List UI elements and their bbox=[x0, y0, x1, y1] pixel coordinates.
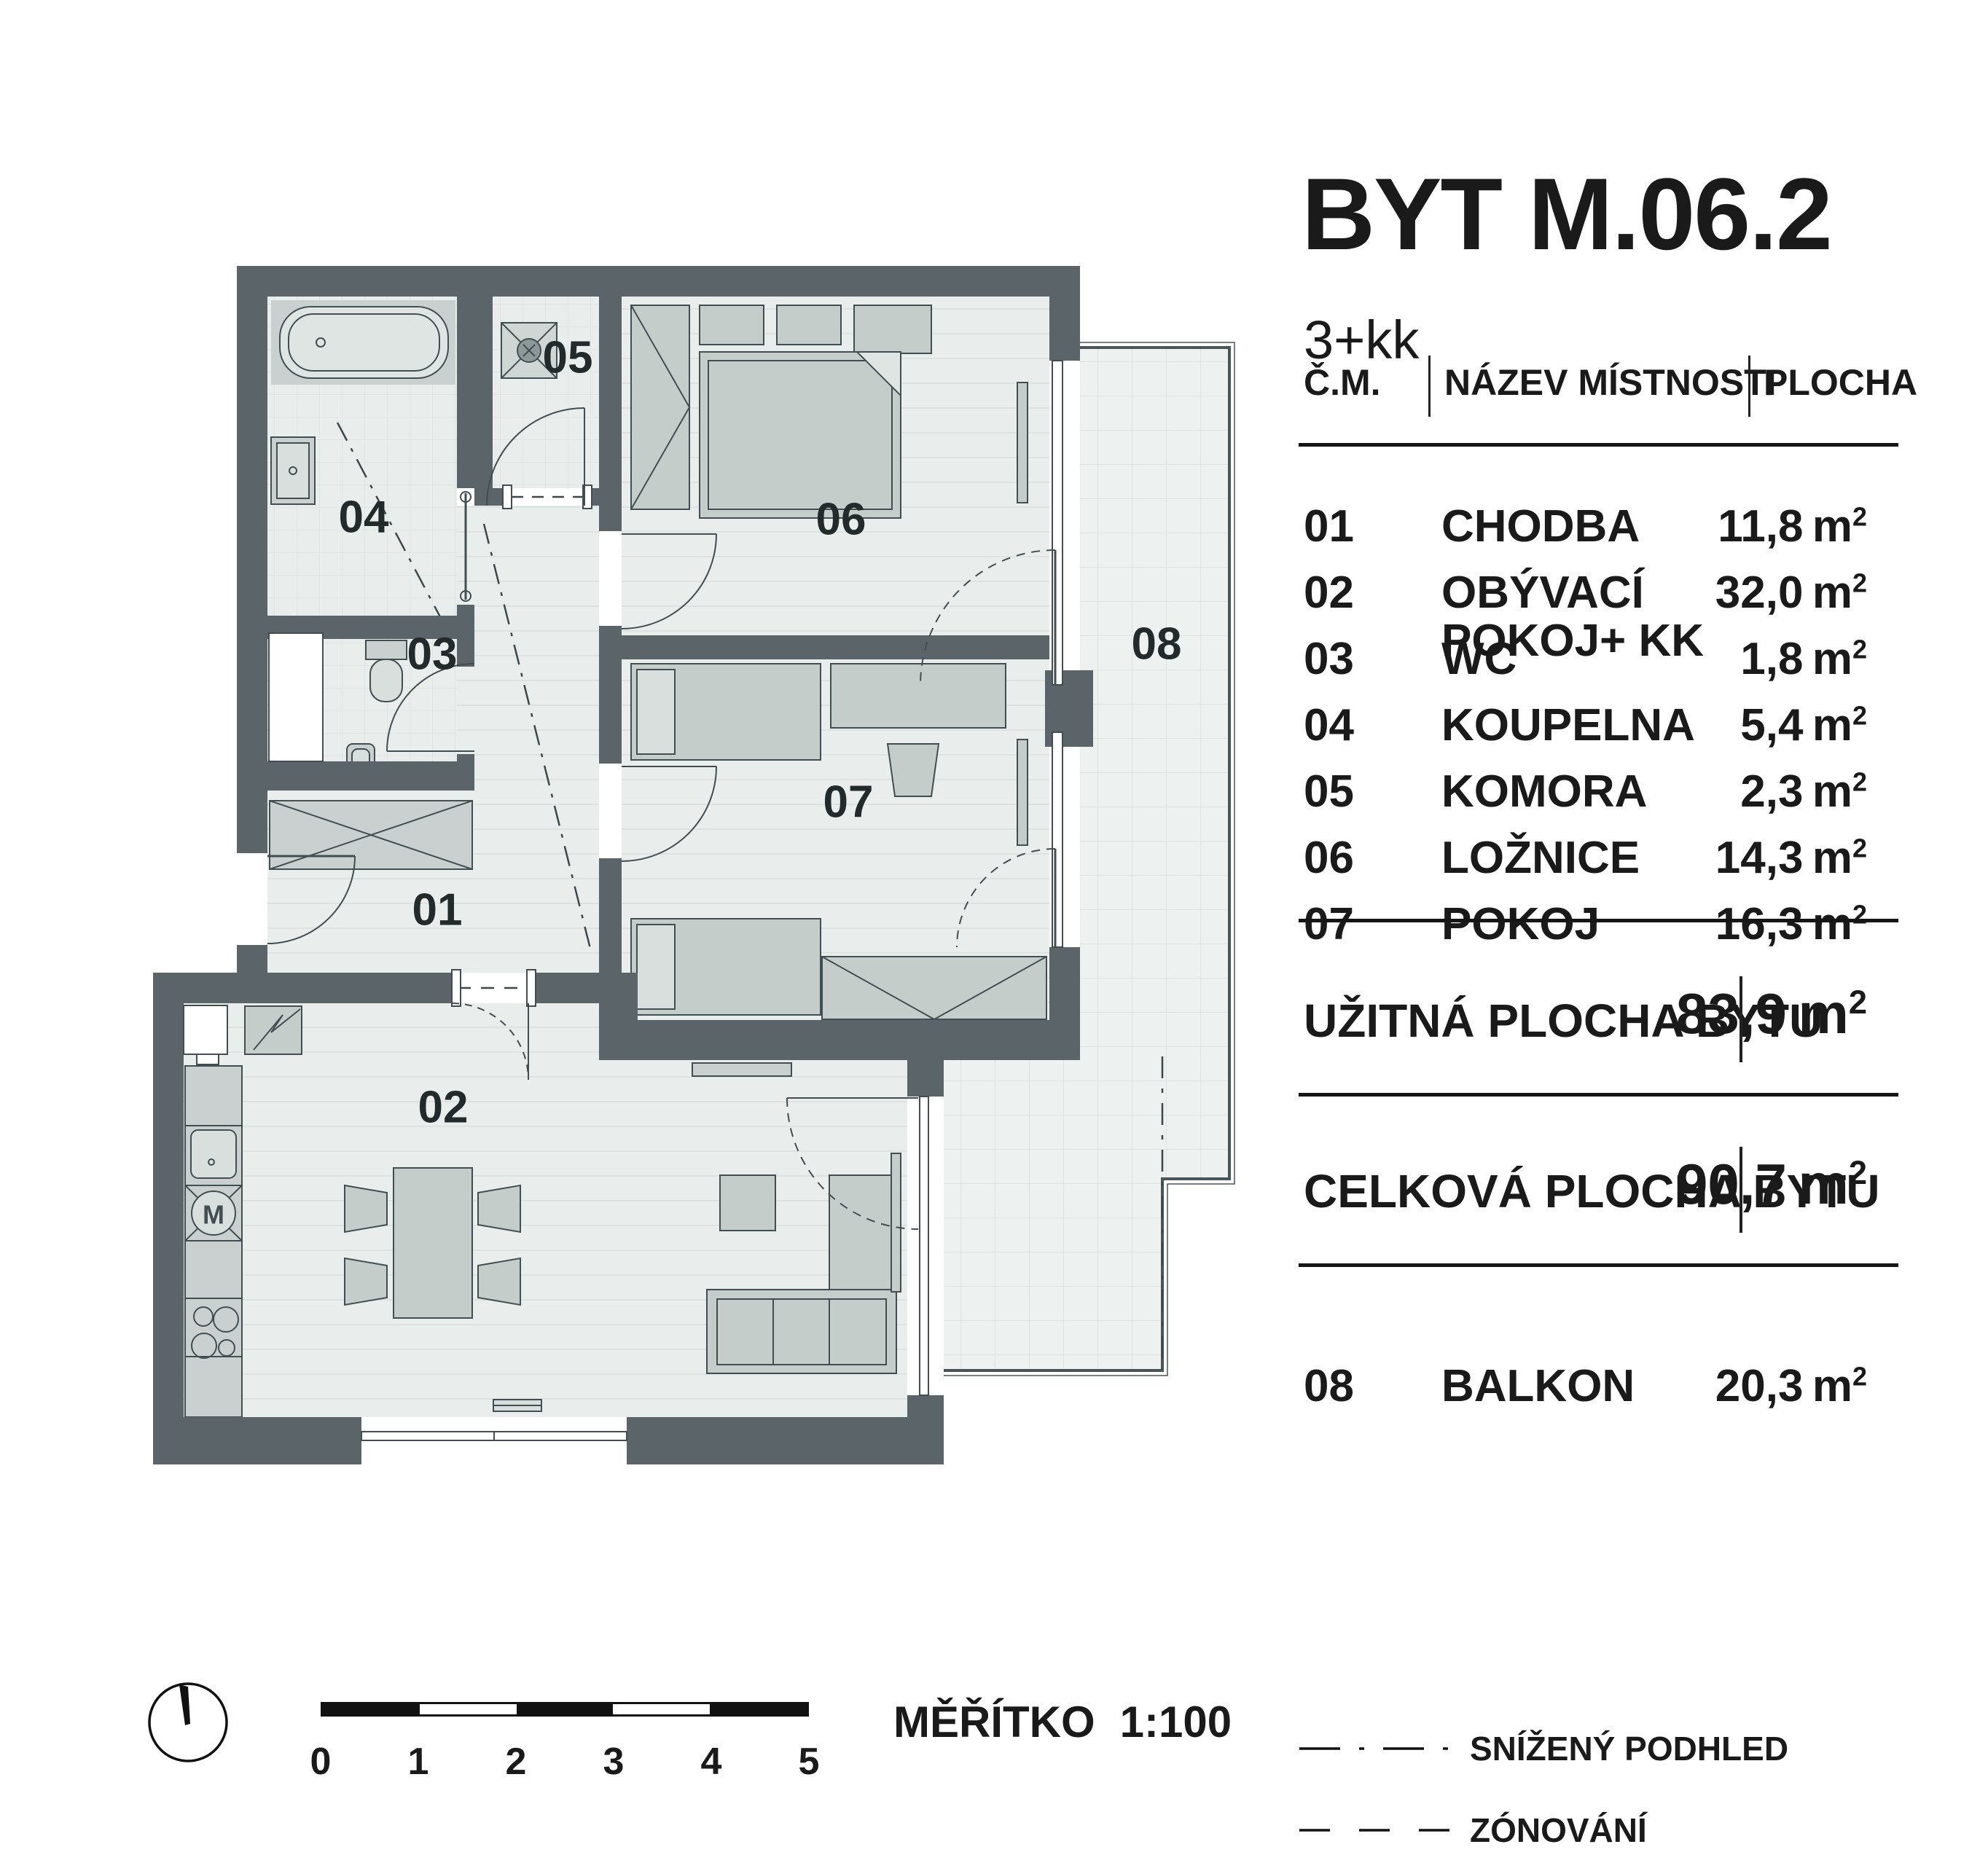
room-num: 07 bbox=[1304, 901, 1441, 949]
room-name: BALKON bbox=[1441, 1362, 1715, 1411]
boiler-icon bbox=[245, 1006, 302, 1054]
scale-note: MĚŘÍTKO1:100 bbox=[893, 1701, 1232, 1744]
room-name: CHODBA bbox=[1441, 503, 1718, 551]
room-name: KOUPELNA bbox=[1441, 702, 1740, 750]
table-row: 04 KOUPELNA 5,4 m2 bbox=[1304, 702, 1867, 750]
legend-row-ceiling: SNÍŽENÝ PODHLED bbox=[1299, 1732, 1788, 1765]
table-row: 07 POKOJ 16,3 m2 bbox=[1304, 901, 1867, 949]
tick-label: 0 bbox=[291, 1743, 350, 1781]
shelf-icon bbox=[692, 1063, 791, 1076]
room-label-03: 03 bbox=[407, 629, 458, 680]
desk-chair-icon bbox=[888, 744, 939, 796]
room-label-01: 01 bbox=[412, 885, 463, 935]
table-row: 02 OBÝVACÍ POKOJ+ KK 32,0 m2 bbox=[1304, 569, 1867, 617]
room-label-05: 05 bbox=[543, 333, 593, 383]
room-area: 32,0 m2 bbox=[1715, 569, 1867, 617]
balcony-row: 08 BALKON 20,3 m2 bbox=[1304, 1362, 1867, 1411]
tick-label: 5 bbox=[780, 1743, 838, 1781]
dining-chair-icon bbox=[478, 1185, 520, 1232]
radiator-icon bbox=[891, 1153, 901, 1292]
legend-label: SNÍŽENÝ PODHLED bbox=[1470, 1732, 1788, 1765]
room-name: LOŽNICE bbox=[1441, 834, 1715, 882]
usable-area-value: 83,9 m2 bbox=[1304, 985, 1867, 1042]
double-bed-icon bbox=[700, 352, 901, 518]
table-rule bbox=[1299, 1263, 1898, 1267]
washbasin-icon bbox=[271, 437, 315, 504]
col-header-name: NÁZEV MÍSTNOSTI bbox=[1444, 364, 1777, 401]
tick-label: 3 bbox=[584, 1743, 643, 1781]
desk-icon bbox=[831, 664, 1006, 728]
room-name: POKOJ bbox=[1441, 901, 1715, 949]
room-area: 5,4 m2 bbox=[1740, 702, 1867, 750]
room-num: 04 bbox=[1304, 702, 1441, 750]
dining-chair-icon bbox=[345, 1258, 387, 1305]
radiator-icon bbox=[1017, 740, 1028, 845]
wardrobe-06-icon bbox=[631, 305, 689, 509]
kitchen-sink-icon bbox=[191, 1130, 236, 1178]
floor-grille-icon bbox=[493, 1400, 541, 1411]
room-label-07: 07 bbox=[823, 777, 874, 828]
window-07 bbox=[1052, 732, 1063, 947]
room-label-08: 08 bbox=[1132, 619, 1182, 670]
room-name: WC bbox=[1441, 635, 1740, 683]
room-area: 1,8 m2 bbox=[1740, 635, 1867, 683]
room-area: 16,3 m2 bbox=[1715, 901, 1867, 949]
washer-m-label: M bbox=[203, 1200, 224, 1230]
col-header-area: PLOCHA bbox=[1764, 364, 1917, 401]
header-divider bbox=[1428, 356, 1431, 417]
room-num: 02 bbox=[1304, 569, 1441, 617]
col-header-num: Č.M. bbox=[1304, 364, 1381, 401]
room-area: 20,3 m2 bbox=[1715, 1362, 1867, 1411]
table-rule bbox=[1299, 443, 1898, 447]
room-area: 2,3 m2 bbox=[1740, 768, 1867, 816]
room-name: OBÝVACÍ POKOJ+ KK bbox=[1441, 569, 1715, 617]
table-row: 03 WC 1,8 m2 bbox=[1304, 635, 1867, 683]
room-num: 03 bbox=[1304, 635, 1441, 683]
page-title: BYT M.06.2 bbox=[1302, 163, 1831, 265]
sofa-icon bbox=[707, 1290, 896, 1373]
room-label-06: 06 bbox=[816, 495, 866, 545]
window-06 bbox=[1052, 361, 1063, 685]
plan-sheet: M bbox=[0, 0, 1988, 1871]
dresser-icon bbox=[854, 305, 931, 353]
single-bed-icon bbox=[631, 664, 821, 760]
single-bed-icon bbox=[631, 919, 821, 1015]
scale-bar-ticks: 0 1 2 3 4 5 bbox=[321, 1743, 809, 1784]
toilet-icon bbox=[366, 640, 407, 702]
legend-row-zoning: ZÓNOVÁNÍ bbox=[1299, 1813, 1647, 1847]
room-label-02: 02 bbox=[418, 1083, 469, 1133]
bathtub-icon bbox=[271, 300, 455, 385]
room-label-04: 04 bbox=[339, 493, 389, 543]
table-row: 01 CHODBA 11,8 m2 bbox=[1304, 503, 1867, 551]
legend-label: ZÓNOVÁNÍ bbox=[1470, 1813, 1647, 1847]
side-table-icon bbox=[720, 1175, 775, 1231]
wardrobe-07-icon bbox=[822, 957, 1046, 1019]
dining-chair-icon bbox=[345, 1185, 387, 1232]
scale-bar bbox=[321, 1702, 809, 1717]
floor-plan: M bbox=[138, 259, 1239, 1468]
dash-dot-line-icon bbox=[1299, 1746, 1452, 1752]
total-area-value: 90,7 m2 bbox=[1304, 1156, 1867, 1212]
tick-label: 2 bbox=[487, 1743, 545, 1781]
nightstand-icon bbox=[700, 305, 764, 345]
room-area: 11,8 m2 bbox=[1718, 503, 1867, 551]
radiator-icon bbox=[1017, 383, 1028, 503]
header-divider bbox=[1748, 356, 1750, 417]
washing-machine-icon: M bbox=[185, 1185, 242, 1241]
room-num: 06 bbox=[1304, 834, 1441, 882]
room-num: 08 bbox=[1304, 1362, 1441, 1411]
room-area: 14,3 m2 bbox=[1715, 834, 1867, 882]
dashed-line-icon bbox=[1299, 1827, 1452, 1833]
nightstand-icon bbox=[777, 305, 841, 345]
dining-chair-icon bbox=[478, 1258, 520, 1305]
dining-table-icon bbox=[394, 1168, 472, 1318]
table-row: 06 LOŽNICE 14,3 m2 bbox=[1304, 834, 1867, 882]
tick-label: 4 bbox=[682, 1743, 740, 1781]
table-rule bbox=[1299, 919, 1898, 922]
north-compass-icon bbox=[146, 1680, 230, 1765]
room-num: 01 bbox=[1304, 503, 1441, 551]
layout-type: 3+kk bbox=[1304, 313, 1419, 367]
chaise-icon bbox=[829, 1175, 898, 1292]
hall-wardrobe-icon bbox=[270, 801, 472, 869]
table-rule bbox=[1299, 1093, 1898, 1097]
window-02-side bbox=[920, 1097, 928, 1395]
room-name: KOMORA bbox=[1441, 768, 1740, 816]
room-num: 05 bbox=[1304, 768, 1441, 816]
tick-label: 1 bbox=[389, 1743, 447, 1781]
table-row: 05 KOMORA 2,3 m2 bbox=[1304, 768, 1867, 816]
